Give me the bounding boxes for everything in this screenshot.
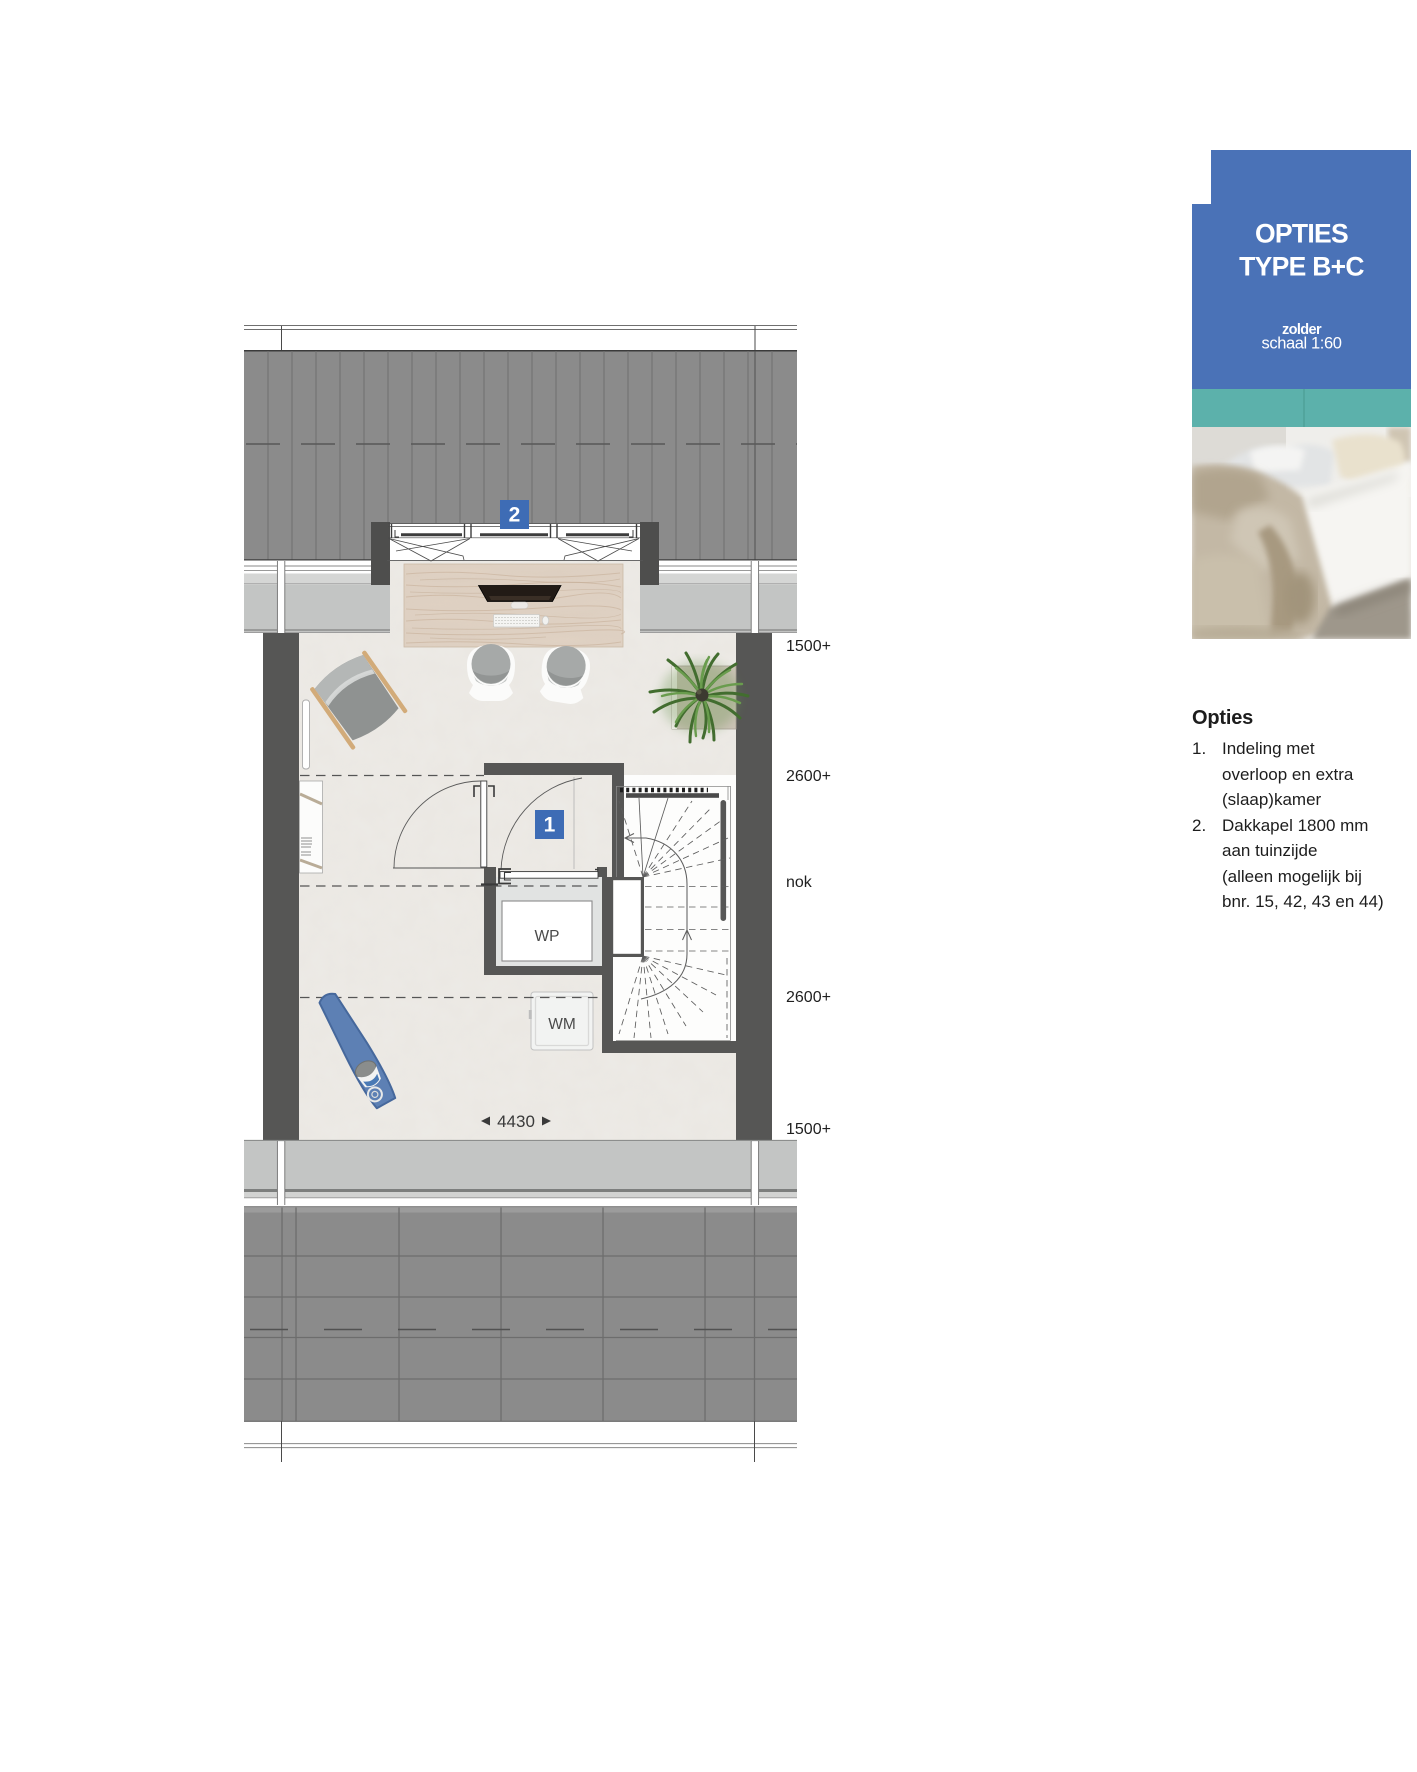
svg-text:WP: WP xyxy=(535,928,560,945)
svg-text:OPTIES: OPTIES xyxy=(1255,219,1348,249)
svg-text:2: 2 xyxy=(509,504,521,527)
svg-text:1: 1 xyxy=(544,814,556,837)
svg-text:2600+: 2600+ xyxy=(786,989,831,1006)
svg-text:WM: WM xyxy=(548,1016,576,1033)
svg-text:nok: nok xyxy=(786,874,813,891)
svg-text:2600+: 2600+ xyxy=(786,768,831,785)
svg-text:1500+: 1500+ xyxy=(786,638,831,655)
svg-text:4430: 4430 xyxy=(497,1112,535,1131)
svg-text:TYPE B+C: TYPE B+C xyxy=(1239,252,1364,282)
svg-text:schaal 1:60: schaal 1:60 xyxy=(1262,335,1342,353)
svg-text:1500+: 1500+ xyxy=(786,1121,831,1138)
